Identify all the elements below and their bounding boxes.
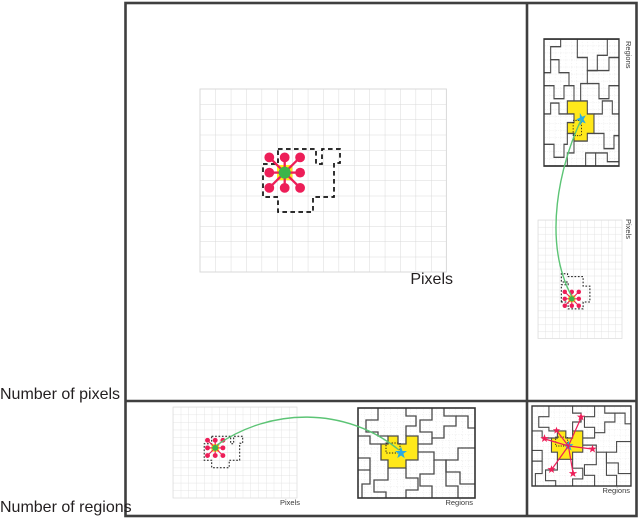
number-of-regions-label: Number of regions: [0, 500, 121, 517]
bottom-regions-map: [358, 408, 475, 498]
figure-canvas: Pixels Number of pixels Number of region…: [0, 0, 640, 519]
bottom-pixels-label: Pixels: [240, 499, 300, 507]
main-pixels-label: Pixels: [353, 272, 453, 289]
bottom-regions-label: Regions: [413, 499, 473, 507]
figure-drawing: [0, 0, 640, 519]
right-regions-map: [544, 39, 619, 166]
right-regions-label: Regions: [624, 41, 632, 69]
right-pixel-grid: [538, 220, 622, 339]
right-pixels-label: Pixels: [624, 219, 632, 239]
right-neighborhood-star: [563, 290, 581, 308]
number-of-pixels-label: Number of pixels: [0, 387, 120, 404]
main-pixel-grid: [200, 89, 446, 272]
main-neighborhood-star: [264, 152, 305, 192]
corner-regions-label: Regions: [570, 487, 630, 495]
bottom-pixel-grid: [173, 407, 297, 498]
